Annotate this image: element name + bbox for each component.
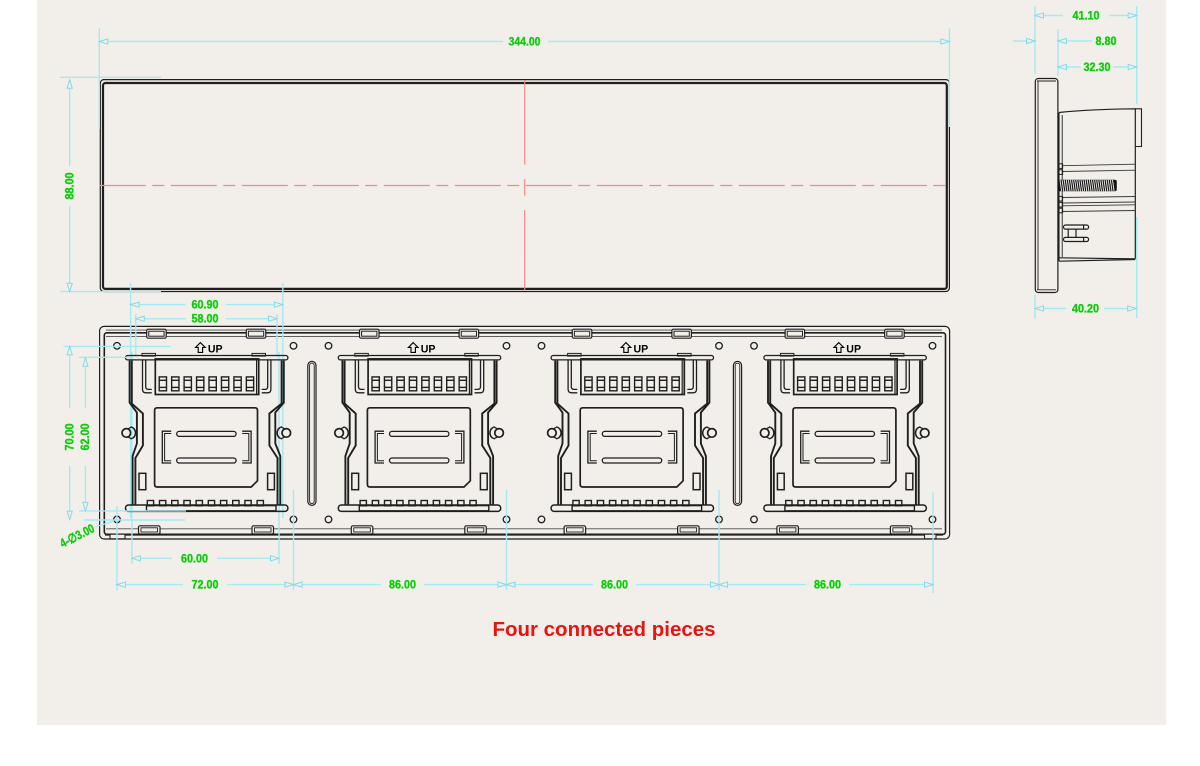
- svg-text:86.00: 86.00: [601, 578, 628, 592]
- svg-text:70.00: 70.00: [63, 423, 77, 450]
- svg-text:32.30: 32.30: [1084, 60, 1111, 74]
- svg-text:40.20: 40.20: [1072, 302, 1099, 316]
- svg-text:8.80: 8.80: [1096, 34, 1117, 48]
- svg-text:58.00: 58.00: [192, 312, 219, 326]
- svg-text:86.00: 86.00: [814, 578, 841, 592]
- svg-text:60.00: 60.00: [181, 551, 208, 565]
- svg-text:62.00: 62.00: [78, 423, 92, 450]
- svg-text:86.00: 86.00: [389, 578, 416, 592]
- svg-text:41.10: 41.10: [1073, 9, 1100, 23]
- svg-text:72.00: 72.00: [192, 578, 219, 592]
- svg-text:88.00: 88.00: [63, 172, 77, 199]
- svg-text:344.00: 344.00: [509, 35, 541, 49]
- svg-text:Four connected pieces: Four connected pieces: [493, 619, 716, 641]
- svg-text:60.90: 60.90: [192, 298, 219, 312]
